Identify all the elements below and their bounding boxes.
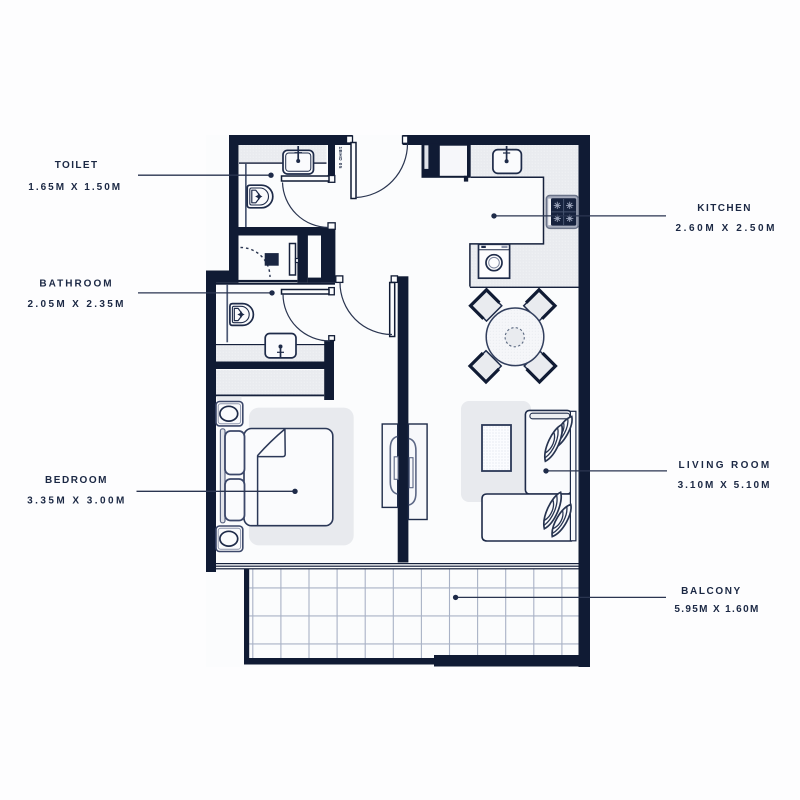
svg-text:LIVING ROOM: LIVING ROOM — [678, 460, 771, 471]
svg-text:3.35M X 3.00M: 3.35M X 3.00M — [27, 496, 127, 507]
svg-text:BATHROOM: BATHROOM — [39, 279, 113, 290]
svg-text:3.10M X 5.10M: 3.10M X 5.10M — [678, 480, 772, 491]
svg-text:2.60M X 2.50M: 2.60M X 2.50M — [675, 223, 777, 234]
svg-text:KITCHEN: KITCHEN — [697, 203, 752, 214]
svg-text:2.05M X 2.35M: 2.05M X 2.35M — [28, 299, 126, 310]
svg-text:1BHD 05: 1BHD 05 — [338, 147, 343, 169]
svg-text:TOILET: TOILET — [55, 160, 99, 171]
svg-text:1.65M X 1.50M: 1.65M X 1.50M — [28, 182, 122, 193]
svg-text:BEDROOM: BEDROOM — [45, 475, 108, 486]
svg-text:5.95M X 1.60M: 5.95M X 1.60M — [674, 604, 759, 615]
svg-text:BALCONY: BALCONY — [681, 586, 742, 597]
